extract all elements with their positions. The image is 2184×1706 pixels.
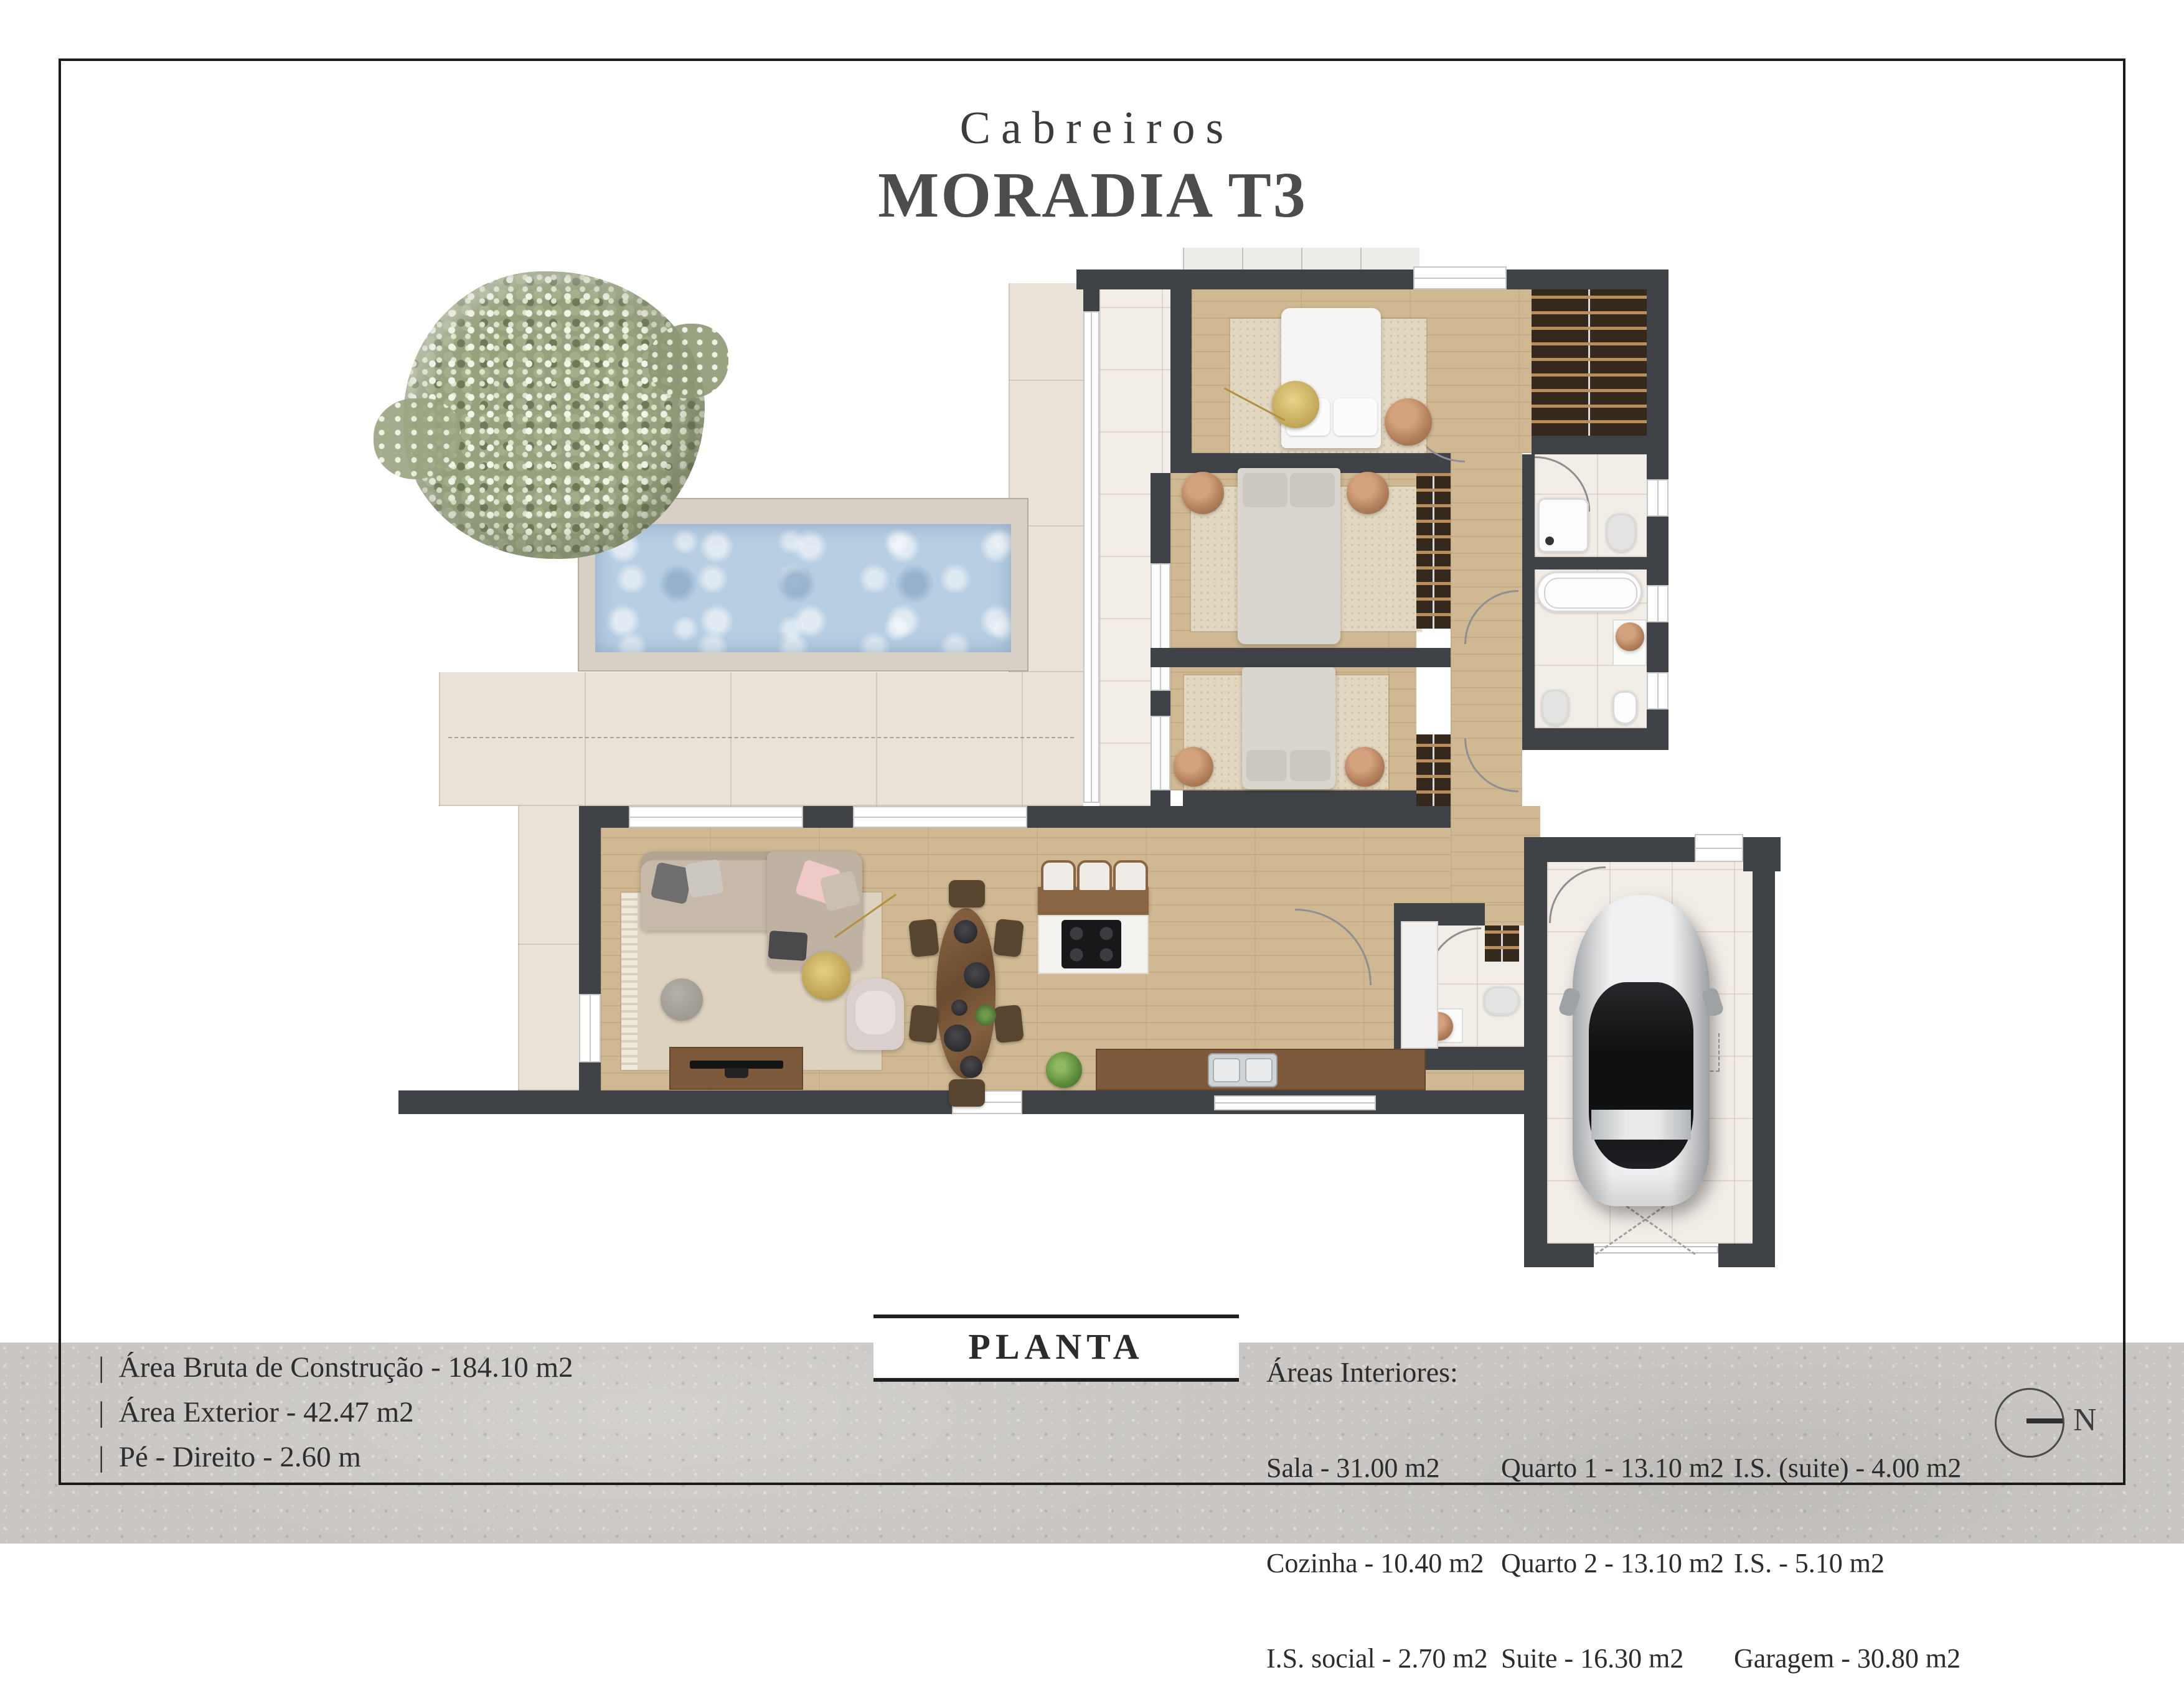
rug-fringe: [621, 893, 638, 1070]
bedroom2-pillow: [1290, 750, 1330, 781]
car-glass: [1589, 982, 1693, 1169]
terrace-expansion-joint: [448, 737, 1074, 738]
wall: [1151, 648, 1451, 667]
side-table: [1385, 398, 1432, 446]
plan-label-box: PLANTA: [873, 1315, 1239, 1382]
compass: N: [1980, 1376, 2142, 1475]
wall: [1743, 837, 1781, 871]
bedroom2-window: [1151, 716, 1170, 790]
side-table: [1347, 472, 1389, 514]
spec-pe-direito: | Pé - Direito - 2.60 m: [98, 1435, 845, 1479]
plate: [951, 1000, 967, 1016]
wall: [1524, 837, 1695, 862]
garage-window: [1695, 834, 1743, 862]
bar-stool: [1113, 860, 1148, 893]
toilet: [1542, 690, 1569, 726]
area-item: Suite - 16.30 m2: [1501, 1643, 1763, 1674]
living-side-window: [579, 994, 601, 1062]
wall: [1522, 728, 1669, 750]
garage-door-threshold: [1594, 1246, 1718, 1254]
wall: [1522, 454, 1535, 750]
toilet: [1606, 513, 1636, 552]
side-table: [1174, 747, 1213, 787]
tall-cabinet: [1401, 921, 1438, 1049]
dining-chair: [949, 880, 985, 907]
plate: [954, 920, 977, 944]
shower-drain: [1545, 537, 1554, 545]
terrace-side-strip: [518, 806, 579, 1090]
bathtub-inner: [1544, 578, 1637, 609]
spec-area-bruta: | Área Bruta de Construção - 184.10 m2: [98, 1345, 845, 1390]
areas-col3: I.S. (suite) - 4.00 m2 I.S. - 5.10 m2 Ga…: [1734, 1389, 1995, 1706]
suite-bed-pillow: [1334, 398, 1377, 436]
coffee-table-marble: [661, 978, 703, 1021]
areas-col2: Quarto 1 - 13.10 m2 Quarto 2 - 13.10 m2 …: [1501, 1389, 1763, 1706]
dining-chair: [908, 919, 939, 957]
area-item: I.S. (suite) - 4.00 m2: [1734, 1452, 1995, 1484]
wall: [1170, 289, 1192, 454]
side-table: [1182, 472, 1224, 514]
bedroom1-pillow: [1243, 473, 1287, 507]
side-tray-table: [768, 930, 808, 961]
pool-water: [595, 524, 1011, 652]
bar-stool: [1077, 860, 1112, 893]
area-item: Quarto 2 - 13.10 m2: [1501, 1547, 1763, 1579]
bar-stool: [1041, 860, 1076, 893]
plant-icon: [975, 1005, 996, 1026]
plant-icon: [1046, 1052, 1082, 1088]
wall: [1083, 289, 1099, 311]
tv-stand: [725, 1068, 748, 1078]
wall: [1532, 436, 1669, 454]
plate: [960, 1056, 982, 1078]
dining-chair: [993, 919, 1024, 957]
terrace-main: [439, 672, 1083, 806]
areas-header: Áreas Interiores:: [1266, 1356, 1458, 1389]
bathroom-window: [1647, 585, 1669, 622]
tree-edge-blob: [647, 324, 728, 398]
area-item: Garagem - 30.80 m2: [1734, 1643, 1995, 1674]
entrance-paving: [1183, 248, 1419, 269]
toilet: [1484, 987, 1520, 1015]
armchair-seat: [855, 991, 895, 1034]
wall: [1507, 269, 1669, 289]
area-item: I.S. social - 2.70 m2: [1266, 1643, 1528, 1674]
area-item: Quarto 1 - 13.10 m2: [1501, 1452, 1763, 1484]
dining-chair: [908, 1005, 939, 1043]
wall: [1524, 1244, 1594, 1267]
sink-basin: [1213, 1058, 1240, 1082]
living-window: [853, 806, 1027, 828]
side-table: [1345, 747, 1385, 787]
plate: [964, 962, 990, 988]
kitchen-sink-window: [1214, 1095, 1376, 1110]
bathroom-window: [1647, 672, 1669, 710]
bedroom1-window: [1151, 563, 1170, 691]
spec-area-exterior: | Área Exterior - 42.47 m2: [98, 1390, 845, 1435]
wall: [1753, 871, 1775, 1267]
dining-chair: [993, 1005, 1024, 1043]
wall: [1718, 1244, 1775, 1267]
bedroom1-pillow: [1290, 473, 1335, 507]
basin-sink: [1616, 622, 1644, 651]
wardrobe: [1416, 473, 1451, 629]
living-window: [629, 806, 803, 828]
cooktop-icon: [1061, 920, 1121, 968]
areas-col1: Sala - 31.00 m2 Cozinha - 10.40 m2 I.S. …: [1266, 1389, 1528, 1706]
plan-label: PLANTA: [873, 1318, 1239, 1378]
suite-window: [1413, 266, 1507, 289]
wardrobe: [1416, 734, 1451, 806]
wall: [1183, 790, 1451, 828]
shower-tray: [1538, 498, 1589, 553]
ceiling-lamp-icon: [1272, 381, 1319, 428]
entry-glazing: [1083, 311, 1099, 803]
compass-needle-icon: [2026, 1418, 2063, 1423]
bedroom2-pillow: [1246, 750, 1287, 781]
sofa-pillow: [685, 859, 724, 898]
plate: [944, 1024, 971, 1052]
bathroom-window: [1647, 479, 1669, 517]
car: [1573, 895, 1710, 1206]
gold-coffee-table: [802, 952, 850, 1000]
bidet: [1612, 691, 1637, 724]
wall: [1076, 269, 1413, 289]
wall: [1532, 557, 1647, 569]
area-item: Cozinha - 10.40 m2: [1266, 1547, 1528, 1579]
wall: [1524, 862, 1547, 1267]
dining-chair: [949, 1079, 985, 1107]
floor-plan: [0, 0, 2184, 1544]
car-roof-band: [1591, 1110, 1691, 1140]
walkin-closet: [1532, 289, 1647, 436]
area-item: Sala - 31.00 m2: [1266, 1452, 1528, 1484]
sink-basin: [1245, 1058, 1273, 1082]
compass-label: N: [2073, 1402, 2097, 1438]
closet: [1485, 926, 1519, 962]
area-item: I.S. - 5.10 m2: [1734, 1547, 1995, 1579]
